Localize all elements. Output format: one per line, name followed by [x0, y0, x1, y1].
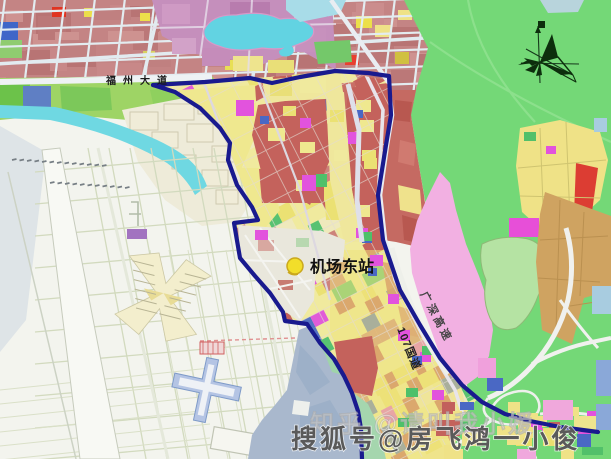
svg-text:机场东站: 机场东站 [310, 257, 374, 276]
svg-text:福州大道: 福州大道 [105, 74, 174, 87]
svg-text:搜狐号@房飞鸿一小俊: 搜狐号@房飞鸿一小俊 [291, 424, 580, 454]
